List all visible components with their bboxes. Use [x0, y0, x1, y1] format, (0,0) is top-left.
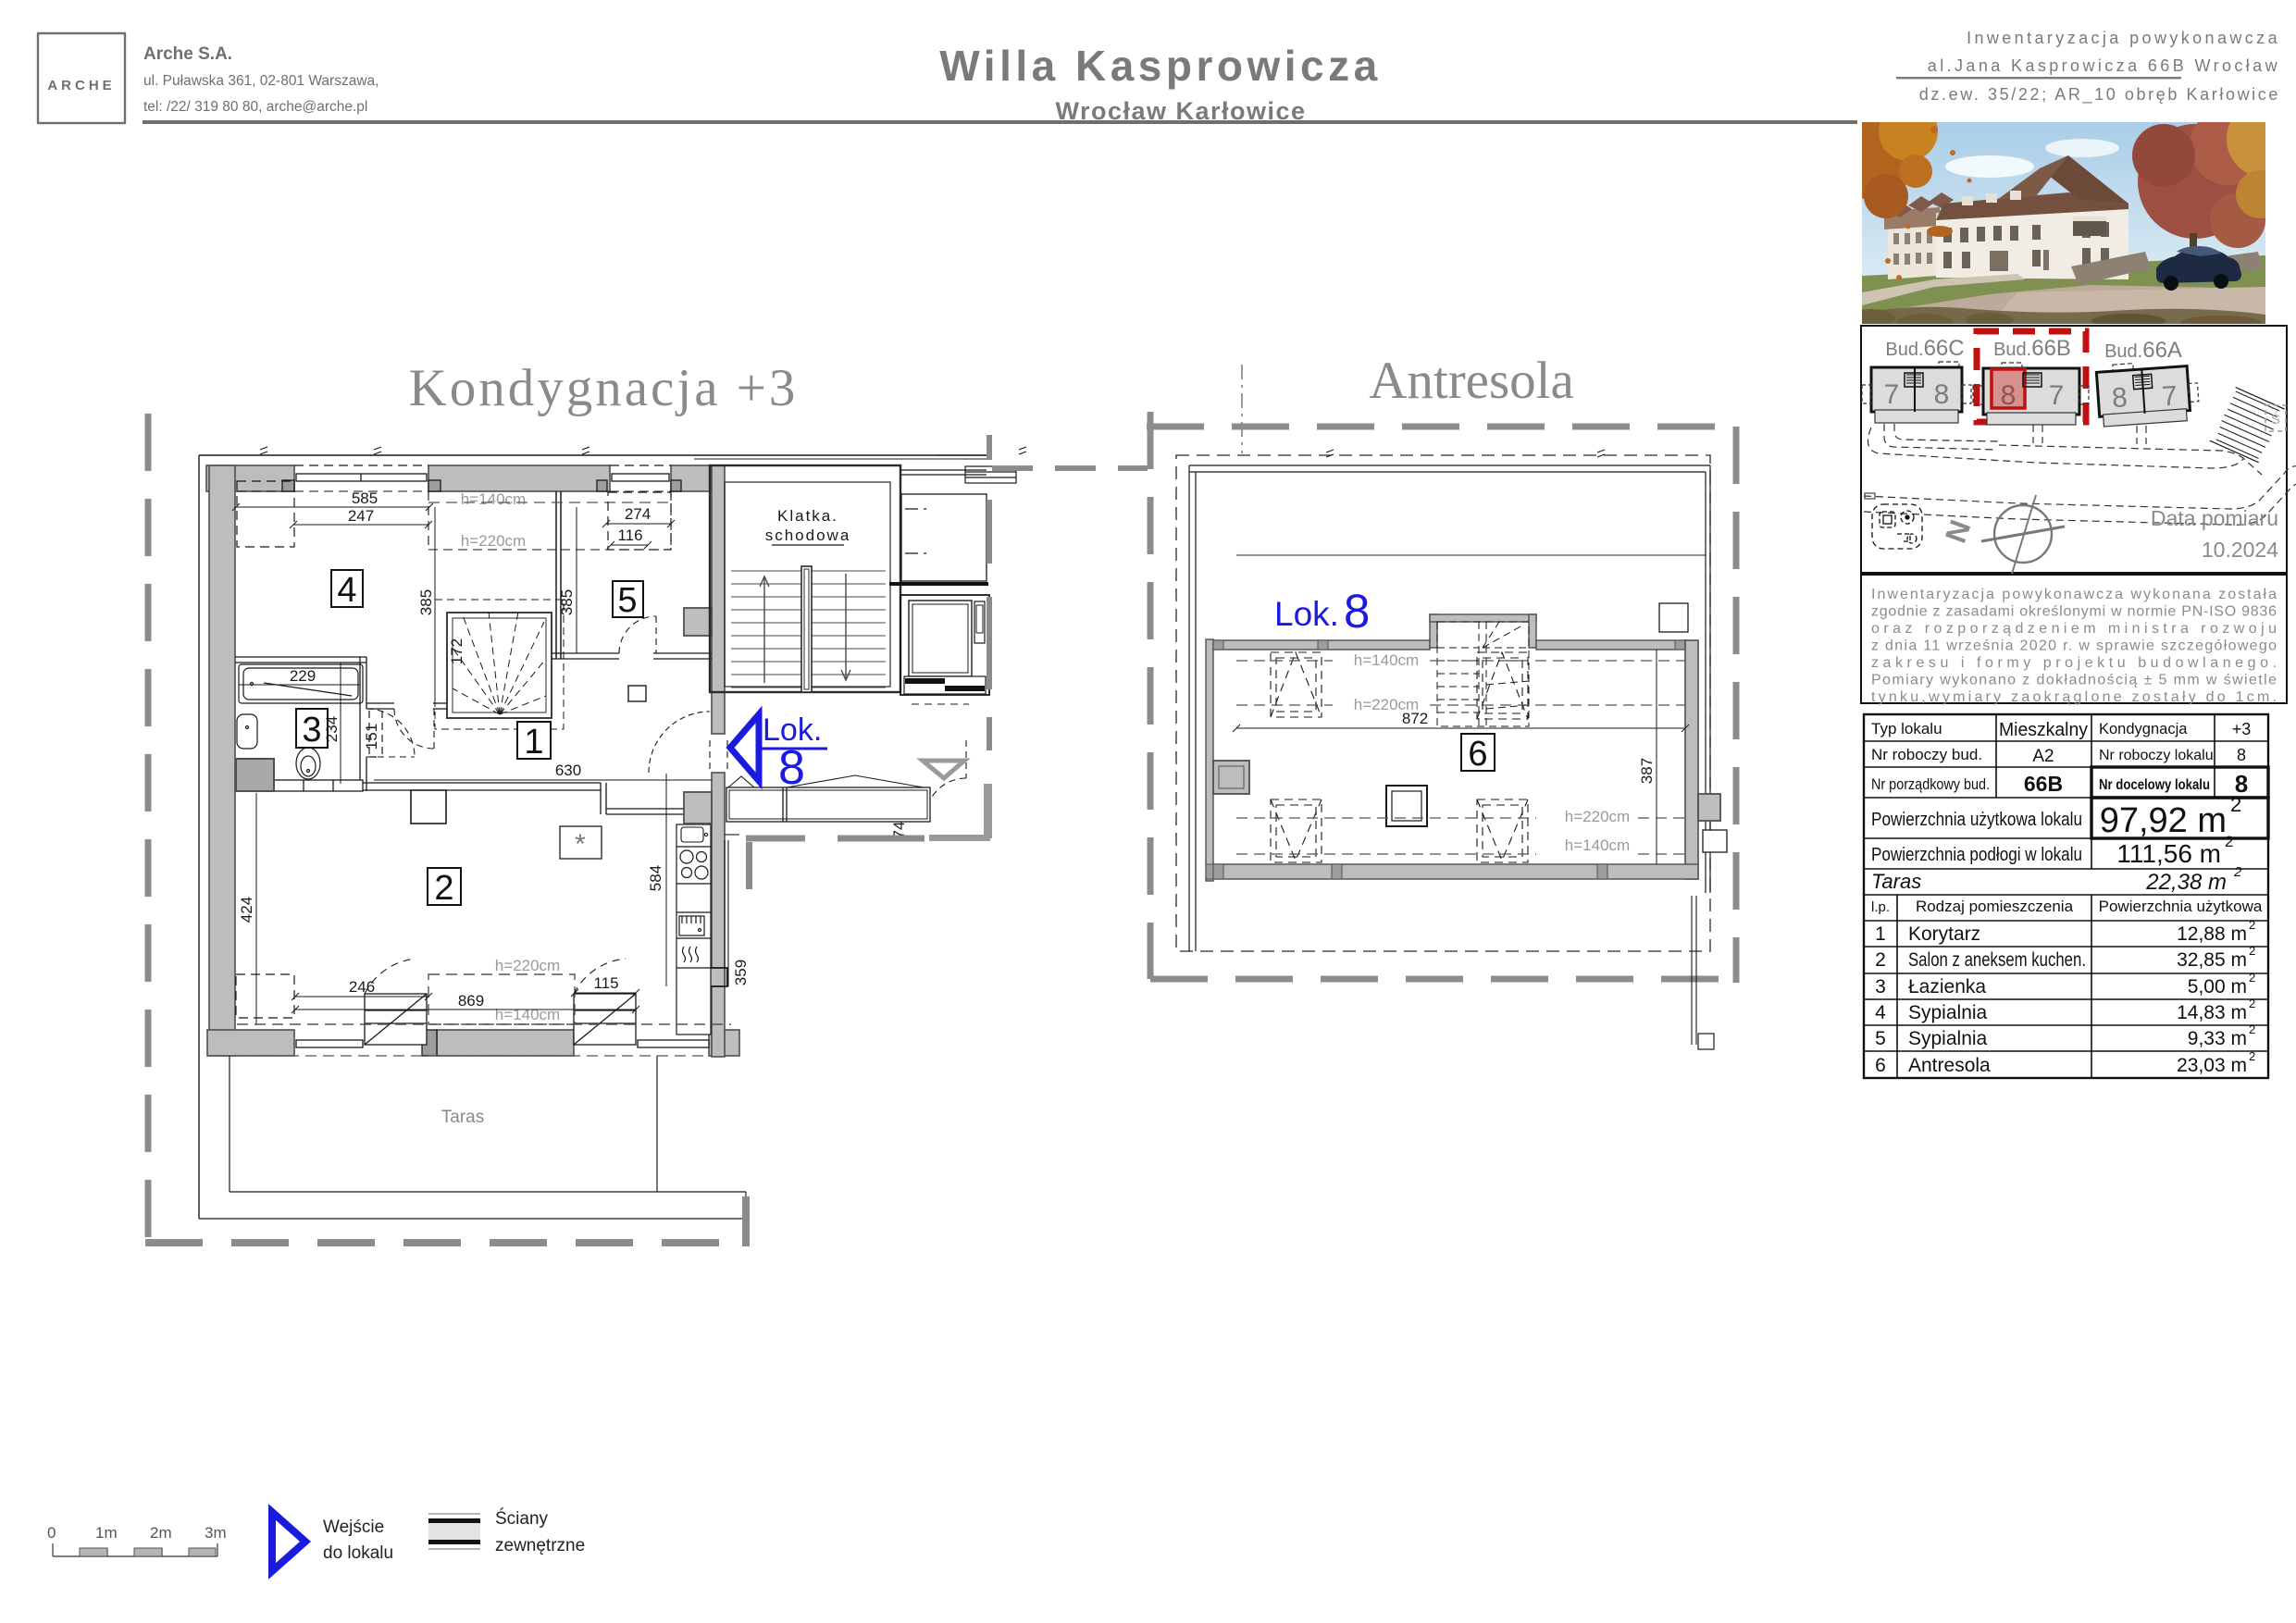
svg-text:585: 585	[352, 489, 378, 507]
svg-text:151: 151	[363, 724, 380, 750]
svg-text:ARCHE: ARCHE	[47, 78, 115, 93]
svg-text:385: 385	[558, 589, 576, 615]
svg-text:zewnętrzne: zewnętrzne	[495, 1536, 585, 1555]
svg-text:97,92 m: 97,92 m	[2100, 801, 2227, 840]
svg-text:Bud.66C: Bud.66C	[1885, 336, 1964, 361]
svg-text:l.p.: l.p.	[1871, 899, 1890, 915]
svg-text:359: 359	[732, 960, 750, 985]
svg-text:115: 115	[593, 974, 618, 992]
svg-text:274: 274	[625, 505, 651, 523]
svg-text:0: 0	[47, 1524, 56, 1542]
svg-text:zgodnie z zasadami określonymi: zgodnie z zasadami określonymi w normie …	[1871, 604, 2277, 620]
svg-text:2: 2	[2230, 793, 2241, 816]
svg-text:32,85 m: 32,85 m	[2177, 949, 2247, 971]
svg-text:Nr roboczy lokalu: Nr roboczy lokalu	[2099, 748, 2214, 763]
svg-text:3m: 3m	[205, 1524, 227, 1542]
svg-text:247: 247	[348, 507, 374, 525]
svg-text:66B: 66B	[2024, 772, 2063, 796]
svg-text:4: 4	[1875, 1002, 1886, 1023]
svg-text:4: 4	[337, 571, 356, 610]
svg-text:+3: +3	[2232, 720, 2252, 738]
svg-text:h=220cm: h=220cm	[495, 957, 560, 974]
svg-text:2: 2	[2225, 833, 2233, 850]
svg-text:6: 6	[1468, 735, 1487, 774]
svg-text:2: 2	[1875, 949, 1886, 971]
svg-text:8: 8	[778, 741, 805, 795]
svg-text:424: 424	[238, 897, 255, 923]
svg-text:869: 869	[458, 992, 484, 1010]
svg-text:5: 5	[1875, 1028, 1886, 1049]
svg-text:h=140cm: h=140cm	[1354, 651, 1419, 669]
svg-text:7: 7	[2161, 380, 2178, 412]
svg-text:Antresola: Antresola	[1369, 352, 1574, 410]
svg-text:Wejście: Wejście	[323, 1518, 384, 1537]
svg-text:1: 1	[524, 723, 543, 762]
svg-text:2: 2	[2249, 1049, 2255, 1063]
svg-text:Kondygnacja +3: Kondygnacja +3	[409, 359, 799, 417]
svg-text:7: 7	[2049, 380, 2065, 411]
svg-text:A2: A2	[2032, 747, 2054, 766]
svg-text:Salon z aneksem kuchen.: Salon z aneksem kuchen.	[1908, 949, 2086, 971]
svg-text:dz.ew. 35/22; AR_10 obręb Karł: dz.ew. 35/22; AR_10 obręb Karłowice	[1919, 85, 2280, 105]
svg-text:h=220cm: h=220cm	[1565, 808, 1630, 825]
svg-text:9,33 m: 9,33 m	[2188, 1028, 2247, 1049]
svg-text:23,03 m: 23,03 m	[2177, 1055, 2247, 1076]
svg-text:Inwentaryzacja powykonawcza wy: Inwentaryzacja powykonawcza wykonana zos…	[1871, 587, 2277, 602]
svg-text:Ś: Ś	[2271, 411, 2280, 427]
svg-text:tel: /22/ 319 80 80, arche@arc: tel: /22/ 319 80 80, arche@arche.pl	[143, 99, 367, 115]
svg-text:Willa Kasprowicza: Willa Kasprowicza	[939, 42, 1381, 90]
svg-text:2: 2	[2249, 918, 2255, 932]
svg-text:630: 630	[555, 762, 581, 779]
svg-text:h=140cm: h=140cm	[1565, 836, 1630, 854]
svg-text:246: 246	[349, 978, 375, 996]
svg-text:22,38 m: 22,38 m	[2145, 870, 2227, 895]
svg-text:5,00 m: 5,00 m	[2188, 976, 2247, 997]
svg-text:Mieszkalny: Mieszkalny	[1999, 720, 2088, 740]
svg-text:Powierzchnia użytkowa lokalu: Powierzchnia użytkowa lokalu	[1871, 810, 2082, 830]
svg-text:2: 2	[2233, 864, 2242, 880]
svg-text:Sypialnia: Sypialnia	[1908, 1002, 1988, 1023]
svg-text:Typ lokalu: Typ lokalu	[1871, 720, 1942, 737]
svg-text:do lokalu: do lokalu	[323, 1543, 393, 1563]
svg-text:8: 8	[2237, 746, 2246, 764]
svg-text:Nr roboczy bud.: Nr roboczy bud.	[1871, 746, 1982, 763]
svg-text:8: 8	[1934, 379, 1950, 410]
svg-text:6: 6	[1875, 1055, 1886, 1076]
svg-text:234: 234	[323, 716, 341, 742]
svg-text:Nr docelowy lokalu: Nr docelowy lokalu	[2099, 777, 2210, 793]
svg-text:3: 3	[1875, 976, 1886, 997]
svg-text:1: 1	[1875, 923, 1886, 945]
svg-text:*: *	[575, 829, 586, 860]
svg-text:229: 229	[290, 667, 316, 685]
svg-text:Arche S.A.: Arche S.A.	[143, 44, 232, 64]
svg-text:Inwentaryzacja powykonawcza: Inwentaryzacja powykonawcza	[1967, 29, 2280, 47]
svg-text:1m: 1m	[95, 1524, 118, 1542]
svg-text:h=140cm: h=140cm	[461, 490, 526, 508]
svg-text:al.Jana Kasprowicza 66B Wrocła: al.Jana Kasprowicza 66B Wrocław	[1928, 56, 2280, 75]
svg-text:8: 8	[2001, 380, 2017, 411]
svg-text:111,56 m: 111,56 m	[2116, 839, 2221, 868]
svg-text:Taras: Taras	[1871, 870, 1921, 893]
svg-text:385: 385	[417, 589, 435, 615]
svg-text:5: 5	[617, 581, 637, 620]
svg-text:2: 2	[2249, 997, 2255, 1010]
svg-text:8: 8	[1344, 585, 1370, 638]
svg-text:10.2024: 10.2024	[2202, 538, 2278, 562]
svg-text:Lok.: Lok.	[1274, 595, 1339, 633]
svg-text:h=220cm: h=220cm	[1354, 696, 1419, 713]
svg-text:h=220cm: h=220cm	[461, 532, 526, 550]
svg-text:Rodzaj pomieszczenia: Rodzaj pomieszczenia	[1916, 898, 2074, 915]
svg-text:Łazienka: Łazienka	[1908, 976, 1986, 997]
svg-text:Taras: Taras	[441, 1108, 484, 1127]
svg-text:584: 584	[647, 865, 664, 891]
svg-text:Korytarz: Korytarz	[1908, 923, 1980, 945]
svg-text:116: 116	[617, 527, 642, 544]
svg-text:Bud.66B: Bud.66B	[1993, 336, 2071, 361]
svg-text:Data pomiaru: Data pomiaru	[2151, 506, 2278, 530]
svg-text:2: 2	[2249, 1022, 2255, 1036]
svg-text:3: 3	[302, 711, 321, 750]
svg-text:2: 2	[2249, 944, 2255, 958]
svg-text:ul. Puławska 361, 02-801 Warsz: ul. Puławska 361, 02-801 Warszawa,	[143, 73, 379, 89]
svg-text:2: 2	[2249, 971, 2255, 985]
svg-text:Kondygnacja: Kondygnacja	[2099, 721, 2188, 737]
svg-text:172: 172	[448, 638, 465, 664]
svg-text:7: 7	[1884, 379, 1900, 410]
svg-text:2m: 2m	[150, 1524, 172, 1542]
svg-text:Wrocław Karłowice: Wrocław Karłowice	[1055, 97, 1306, 125]
svg-text:Powierzchnia podłogi w lokalu: Powierzchnia podłogi w lokalu	[1871, 845, 2082, 865]
svg-text:387: 387	[1638, 758, 1656, 784]
svg-text:Bud.66A: Bud.66A	[2104, 338, 2182, 363]
svg-text:2: 2	[434, 869, 453, 908]
svg-text:schodowa: schodowa	[765, 527, 851, 544]
svg-text:Powierzchnia użytkowa: Powierzchnia użytkowa	[2099, 898, 2263, 915]
svg-text:Klatka.: Klatka.	[777, 507, 838, 525]
svg-text:8: 8	[2111, 382, 2128, 414]
svg-text:Ściany: Ściany	[495, 1508, 549, 1529]
svg-text:h=140cm: h=140cm	[495, 1006, 560, 1023]
svg-text:Pomiary wykonano z dokładności: Pomiary wykonano z dokładnością ± 5 mm w…	[1871, 673, 2277, 688]
svg-text:Nr porządkowy bud.: Nr porządkowy bud.	[1871, 775, 1990, 793]
svg-text:12,88 m: 12,88 m	[2177, 923, 2247, 945]
svg-text:Antresola: Antresola	[1908, 1055, 1991, 1076]
svg-text:14,83 m: 14,83 m	[2177, 1002, 2247, 1023]
svg-text:Sypialnia: Sypialnia	[1908, 1028, 1988, 1049]
svg-text:z dnia 11 września 2020 r. w s: z dnia 11 września 2020 r. w sprawie szc…	[1871, 638, 2277, 654]
